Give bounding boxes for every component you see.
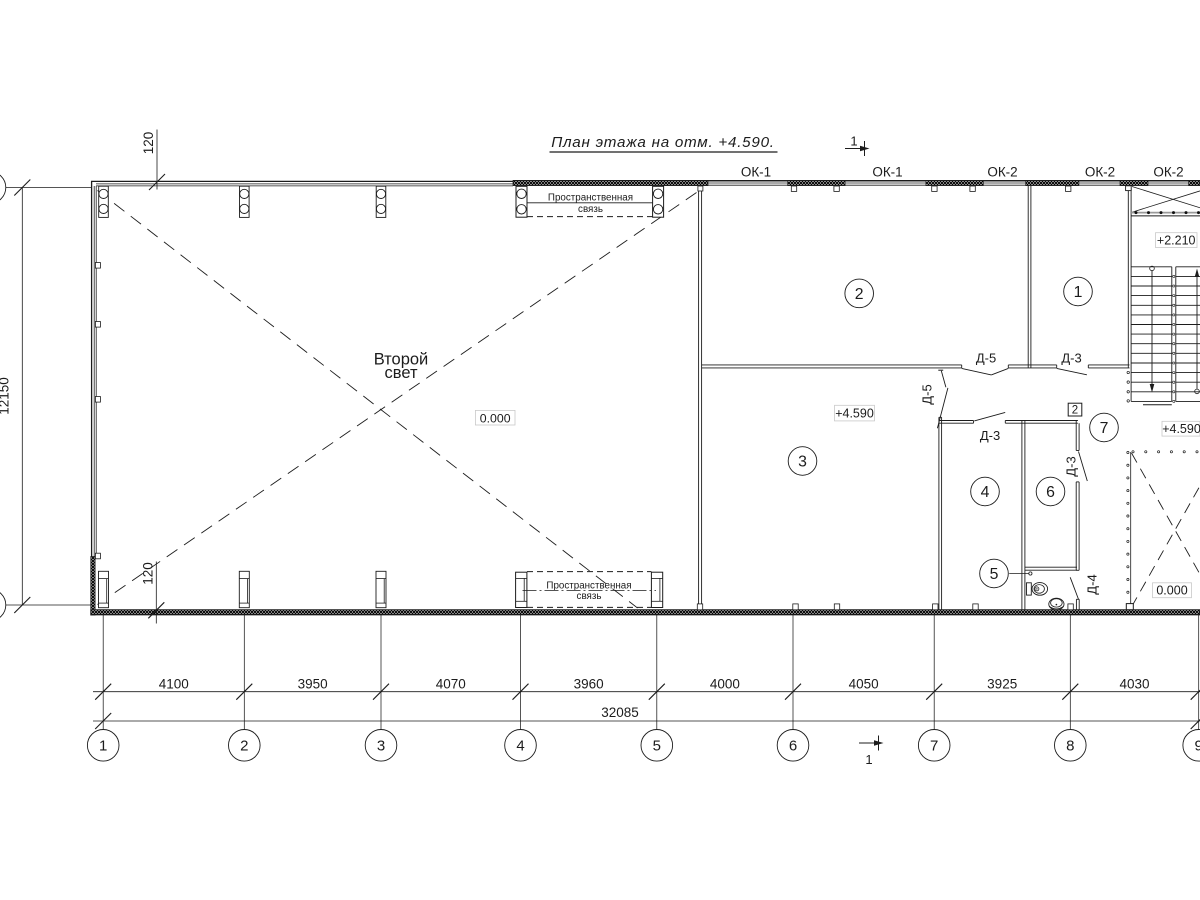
svg-text:Д-5: Д-5 <box>920 384 935 404</box>
svg-text:Д-3: Д-3 <box>1061 351 1081 366</box>
svg-text:План этажа на отм. +4.590.: План этажа на отм. +4.590. <box>551 134 775 151</box>
svg-text:6: 6 <box>1046 484 1055 501</box>
svg-text:8: 8 <box>1066 738 1074 755</box>
svg-text:Пространственная: Пространственная <box>548 192 633 203</box>
svg-text:Д-5: Д-5 <box>976 351 996 366</box>
svg-text:4000: 4000 <box>710 676 740 691</box>
svg-text:120: 120 <box>140 562 155 585</box>
svg-text:связь: связь <box>578 204 603 215</box>
svg-text:ОК-1: ОК-1 <box>741 165 771 180</box>
svg-text:1: 1 <box>850 134 857 149</box>
svg-text:свет: свет <box>384 364 417 382</box>
svg-text:4: 4 <box>516 738 524 755</box>
svg-text:9: 9 <box>1195 738 1200 755</box>
svg-text:2: 2 <box>855 286 864 303</box>
svg-text:ОК-1: ОК-1 <box>872 165 902 180</box>
svg-text:3960: 3960 <box>574 676 604 691</box>
svg-text:1: 1 <box>99 738 107 755</box>
svg-text:ОК-2: ОК-2 <box>1085 165 1115 180</box>
svg-text:+4.590: +4.590 <box>1162 422 1200 436</box>
svg-text:Д-4: Д-4 <box>1085 574 1100 594</box>
svg-text:120: 120 <box>141 132 156 155</box>
svg-text:0.000: 0.000 <box>1156 584 1187 598</box>
svg-text:4030: 4030 <box>1119 676 1149 691</box>
svg-text:5: 5 <box>653 738 661 755</box>
svg-text:3: 3 <box>377 738 385 755</box>
svg-text:5: 5 <box>990 566 999 583</box>
svg-text:7: 7 <box>1100 420 1109 437</box>
svg-text:3925: 3925 <box>987 676 1017 691</box>
svg-text:12150: 12150 <box>0 377 12 415</box>
svg-text:7: 7 <box>930 738 938 755</box>
svg-text:4: 4 <box>981 484 990 501</box>
svg-text:2: 2 <box>240 738 248 755</box>
svg-text:ОК-2: ОК-2 <box>987 165 1017 180</box>
svg-text:4050: 4050 <box>849 676 879 691</box>
svg-text:4100: 4100 <box>159 676 189 691</box>
svg-text:0.000: 0.000 <box>480 411 511 425</box>
svg-text:+4.590: +4.590 <box>835 407 874 421</box>
svg-text:3: 3 <box>798 454 807 471</box>
svg-text:Д-3: Д-3 <box>980 428 1000 443</box>
svg-text:ОК-2: ОК-2 <box>1153 165 1183 180</box>
svg-text:+2.210: +2.210 <box>1157 234 1196 248</box>
svg-text:связь: связь <box>577 591 602 602</box>
svg-text:4070: 4070 <box>436 676 466 691</box>
svg-text:2: 2 <box>1072 404 1078 416</box>
svg-text:1: 1 <box>865 752 872 767</box>
svg-text:3950: 3950 <box>298 676 328 691</box>
svg-text:Д-3: Д-3 <box>1064 456 1079 476</box>
svg-text:1: 1 <box>1074 284 1083 301</box>
svg-text:6: 6 <box>789 738 797 755</box>
svg-text:32085: 32085 <box>601 705 639 720</box>
